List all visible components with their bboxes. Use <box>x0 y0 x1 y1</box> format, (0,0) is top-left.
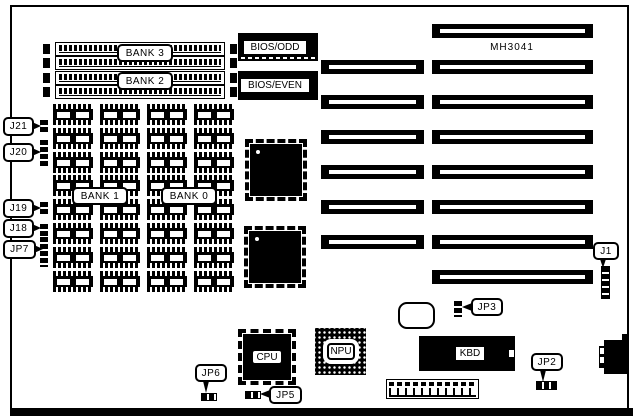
keyboard-din-connector <box>604 340 629 374</box>
connector-j1-pins <box>601 266 610 299</box>
isa-slot-segment-long <box>432 60 593 74</box>
jumper-jp3-pins <box>454 301 462 317</box>
kbd-label: KBD <box>455 346 485 361</box>
jumper-j18-label: J18 <box>3 219 34 238</box>
bios-even-label: BIOS/EVEN <box>241 79 309 92</box>
isa-slot-segment-long <box>432 235 593 249</box>
jumper-jp2-pins <box>536 381 557 390</box>
kbd-controller-chip: KBD <box>419 336 515 371</box>
jp6-pointer-icon <box>203 381 209 393</box>
dram-dip-chip <box>147 223 187 244</box>
dram-dip-chip <box>194 247 234 268</box>
pin1-dot-icon <box>256 150 260 154</box>
board-edge-bottom <box>10 408 633 416</box>
motherboard-diagram: BANK 3 BANK 2 BANK 1 BANK 0 BIOS/ODD BIO… <box>0 0 633 416</box>
bios-even-chip: BIOS/EVEN <box>238 71 318 100</box>
cpu-label: CPU <box>251 349 283 365</box>
isa-slot-segment-long <box>432 130 593 144</box>
dram-dip-chip <box>53 247 93 268</box>
board-model: MH3041 <box>470 42 554 53</box>
jumper-j20-pins <box>40 140 48 167</box>
isa-slot-segment-long <box>432 24 593 38</box>
qfp-chipset-2-body <box>249 231 301 283</box>
jumper-jp2-label: JP2 <box>531 353 563 371</box>
simm-end-cap <box>230 73 237 83</box>
dram-dip-chip <box>53 223 93 244</box>
dram-dip-chip <box>147 152 187 173</box>
bios-odd-chip: BIOS/ODD <box>238 33 318 61</box>
simm-end-cap <box>230 44 237 54</box>
dram-dip-chip <box>53 271 93 292</box>
isa-slot-segment-short <box>321 60 424 74</box>
npu-label: NPU <box>327 343 355 360</box>
isa-slot-segment-short <box>321 165 424 179</box>
bank2-label: BANK 2 <box>117 72 173 90</box>
dram-dip-chip <box>147 247 187 268</box>
dram-dip-chip <box>194 152 234 173</box>
connector-j1-label: J1 <box>593 242 619 260</box>
kbd-chip-notch <box>509 350 514 357</box>
qfp-chipset-2 <box>244 226 306 288</box>
jumper-jp5-pins <box>245 391 261 399</box>
qfp-chipset-1 <box>245 139 307 201</box>
j1-pointer-icon <box>600 259 606 268</box>
pin1-dot-icon <box>255 237 259 241</box>
page: { "board": { "model": "MH3041" }, "color… <box>0 0 633 416</box>
dram-dip-chip <box>147 104 187 125</box>
crystal-oscillator <box>398 302 435 329</box>
jumper-j21-pins <box>40 120 48 133</box>
keyboard-din-pin-window <box>600 348 604 354</box>
dram-dip-chip <box>100 271 140 292</box>
simm-end-cap <box>43 44 50 54</box>
isa-slot-segment-short <box>321 235 424 249</box>
bank0-label: BANK 0 <box>161 187 217 205</box>
power-connector-pins <box>389 382 476 386</box>
isa-slot-segment-long <box>432 200 593 214</box>
jp2-pointer-icon <box>540 370 546 382</box>
jumper-jp6-pins <box>201 393 217 401</box>
keyboard-din-step <box>622 334 629 342</box>
bios-odd-socket-pins <box>241 57 315 59</box>
dram-dip-chip <box>100 247 140 268</box>
jumper-j19-pins <box>40 202 48 215</box>
isa-slot-segment-long <box>432 165 593 179</box>
isa-slot-segment-short <box>321 95 424 109</box>
jumper-jp5-label: JP5 <box>269 386 302 404</box>
simm-end-cap <box>230 87 237 97</box>
jumper-j20-label: J20 <box>3 143 34 162</box>
cpu-chip-body: CPU <box>243 334 291 380</box>
npu-socket: NPU <box>315 328 366 375</box>
dram-dip-chip <box>194 223 234 244</box>
simm-end-cap <box>43 73 50 83</box>
power-connector-base <box>389 395 476 397</box>
simm-end-cap <box>230 58 237 68</box>
keyboard-din-pin-window <box>600 357 604 363</box>
board-edge-top <box>10 5 629 7</box>
jumper-j21-label: J21 <box>3 117 34 136</box>
bank1-label: BANK 1 <box>72 187 128 205</box>
cpu-chip: CPU <box>238 329 296 385</box>
simm-socket-baseline <box>59 66 221 67</box>
dram-dip-chip <box>194 104 234 125</box>
dram-dip-chip <box>53 152 93 173</box>
dram-dip-chip <box>100 223 140 244</box>
jumper-j19-label: J19 <box>3 199 34 218</box>
jumper-j18-pins <box>40 224 48 237</box>
simm-end-cap <box>43 58 50 68</box>
jumper-jp3-label: JP3 <box>471 298 503 316</box>
isa-slot-segment-short <box>321 200 424 214</box>
simm-socket-baseline <box>59 95 221 96</box>
simm-end-cap <box>43 87 50 97</box>
dram-dip-chip <box>100 128 140 149</box>
bank3-label: BANK 3 <box>117 44 173 62</box>
dram-dip-chip <box>53 128 93 149</box>
dram-dip-chip <box>147 271 187 292</box>
jumper-jp7-label: JP7 <box>3 240 36 259</box>
dram-dip-chip <box>100 152 140 173</box>
dram-dip-chip <box>194 128 234 149</box>
isa-slot-segment-long <box>432 270 593 284</box>
qfp-chipset-1-body <box>250 144 302 196</box>
isa-slot-segment-long <box>432 95 593 109</box>
isa-slot-segment-short <box>321 130 424 144</box>
bios-odd-label: BIOS/ODD <box>244 41 306 54</box>
dram-dip-chip <box>194 271 234 292</box>
dram-dip-chip <box>100 104 140 125</box>
dram-dip-chip <box>147 128 187 149</box>
power-connector <box>386 379 479 399</box>
dram-dip-chip <box>53 104 93 125</box>
jumper-jp6-label: JP6 <box>195 364 227 382</box>
